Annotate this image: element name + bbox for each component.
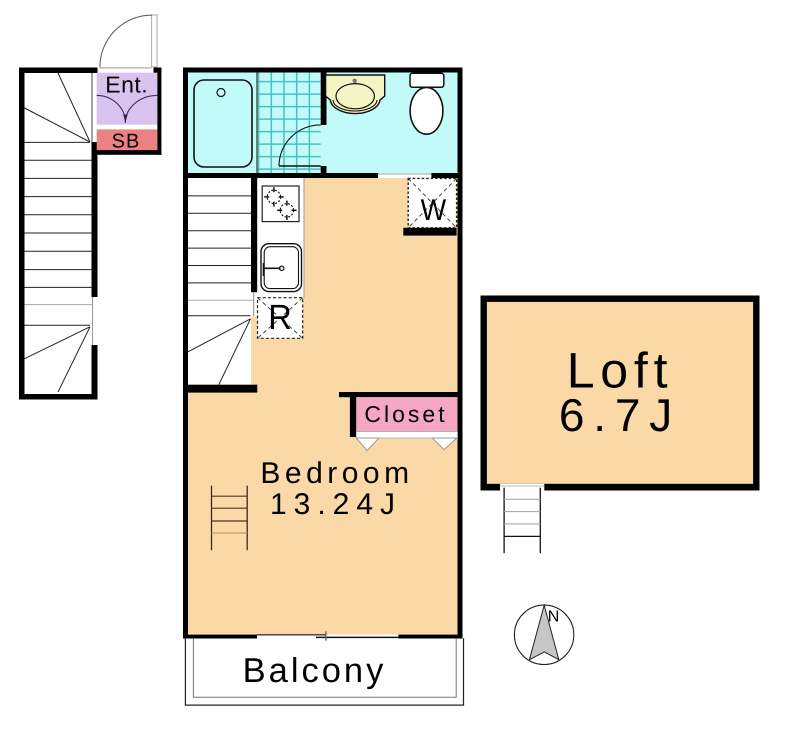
svg-text:Bedroom: Bedroom xyxy=(260,457,413,490)
svg-text:Closet: Closet xyxy=(364,401,447,427)
svg-text:N: N xyxy=(548,609,560,626)
svg-text:Balcony: Balcony xyxy=(243,652,387,690)
svg-text:R: R xyxy=(268,298,292,337)
svg-text:W: W xyxy=(421,194,447,227)
svg-text:13.24J: 13.24J xyxy=(270,488,402,521)
svg-text:Ent.: Ent. xyxy=(105,72,148,98)
svg-text:SB: SB xyxy=(112,130,141,152)
svg-text:6.7J: 6.7J xyxy=(559,389,681,441)
